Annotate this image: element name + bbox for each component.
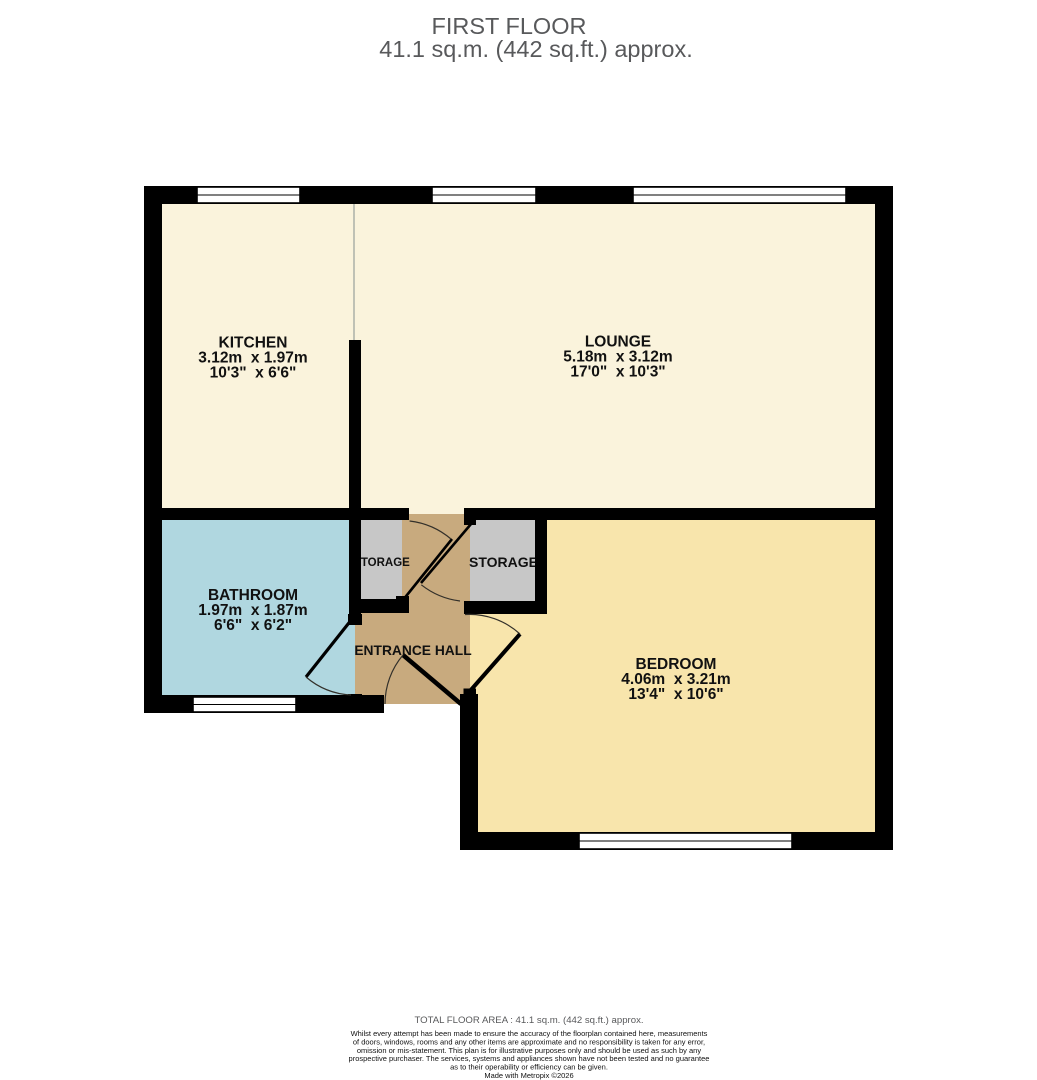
svg-text:13'4" x 10'6": 13'4" x 10'6" [628, 686, 723, 703]
svg-text:Made with Metropix ©2026: Made with Metropix ©2026 [484, 1071, 573, 1080]
svg-text:TOTAL FLOOR AREA : 41.1 sq.m.: TOTAL FLOOR AREA : 41.1 sq.m. (442 sq.ft… [414, 1015, 643, 1026]
svg-text:STORAGE: STORAGE [469, 554, 538, 570]
svg-text:41.1 sq.m. (442 sq.ft.) approx: 41.1 sq.m. (442 sq.ft.) approx. [379, 36, 693, 62]
svg-text:6'6" x 6'2": 6'6" x 6'2" [214, 617, 292, 634]
svg-text:STORAGE: STORAGE [353, 557, 410, 569]
svg-text:10'3" x 6'6": 10'3" x 6'6" [210, 365, 297, 382]
svg-text:ENTRANCE HALL: ENTRANCE HALL [354, 643, 471, 658]
svg-text:17'0" x 10'3": 17'0" x 10'3" [570, 364, 665, 381]
